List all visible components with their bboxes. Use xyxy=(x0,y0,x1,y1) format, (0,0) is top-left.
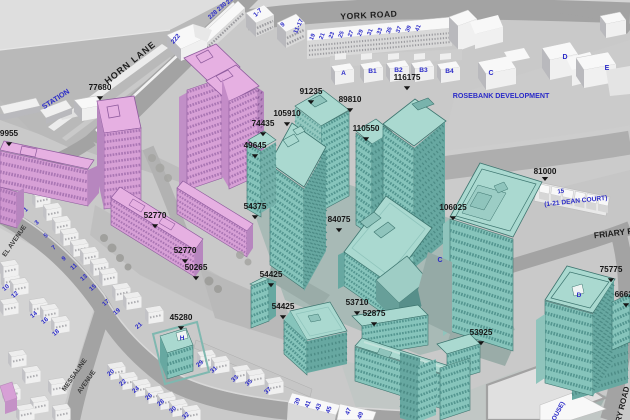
svg-text:ROSEBANK DEVELOPMENT: ROSEBANK DEVELOPMENT xyxy=(453,92,550,100)
svg-text:B4: B4 xyxy=(445,68,454,75)
svg-text:53925: 53925 xyxy=(470,328,493,337)
svg-text:A: A xyxy=(341,70,346,77)
svg-text:106025: 106025 xyxy=(439,203,467,212)
svg-text:B1: B1 xyxy=(368,68,377,75)
svg-text:66625: 66625 xyxy=(615,290,630,299)
svg-text:9955: 9955 xyxy=(0,129,19,138)
svg-text:74435: 74435 xyxy=(252,119,275,128)
svg-text:H: H xyxy=(180,335,185,342)
svg-text:81000: 81000 xyxy=(534,167,557,176)
svg-text:110550: 110550 xyxy=(353,124,380,133)
svg-text:C: C xyxy=(437,257,442,264)
svg-text:89810: 89810 xyxy=(339,95,362,104)
svg-text:84075: 84075 xyxy=(328,215,351,224)
svg-text:54425: 54425 xyxy=(260,270,283,279)
svg-text:49645: 49645 xyxy=(244,141,267,150)
svg-text:45280: 45280 xyxy=(170,313,193,322)
svg-text:52770: 52770 xyxy=(174,246,197,255)
svg-text:54425: 54425 xyxy=(272,302,295,311)
svg-text:75775: 75775 xyxy=(600,265,623,274)
svg-text:D: D xyxy=(562,54,567,61)
svg-text:B3: B3 xyxy=(419,67,428,74)
svg-text:91235: 91235 xyxy=(300,87,323,96)
svg-text:50265: 50265 xyxy=(185,263,208,272)
svg-text:105910: 105910 xyxy=(273,109,301,118)
svg-text:C: C xyxy=(488,70,493,77)
svg-text:D: D xyxy=(577,292,582,299)
svg-text:52770: 52770 xyxy=(144,211,167,220)
svg-text:53710: 53710 xyxy=(346,298,369,307)
svg-text:54375: 54375 xyxy=(244,202,267,211)
svg-text:116175: 116175 xyxy=(394,73,421,82)
svg-text:E: E xyxy=(605,65,610,72)
svg-text:52875: 52875 xyxy=(363,309,386,318)
